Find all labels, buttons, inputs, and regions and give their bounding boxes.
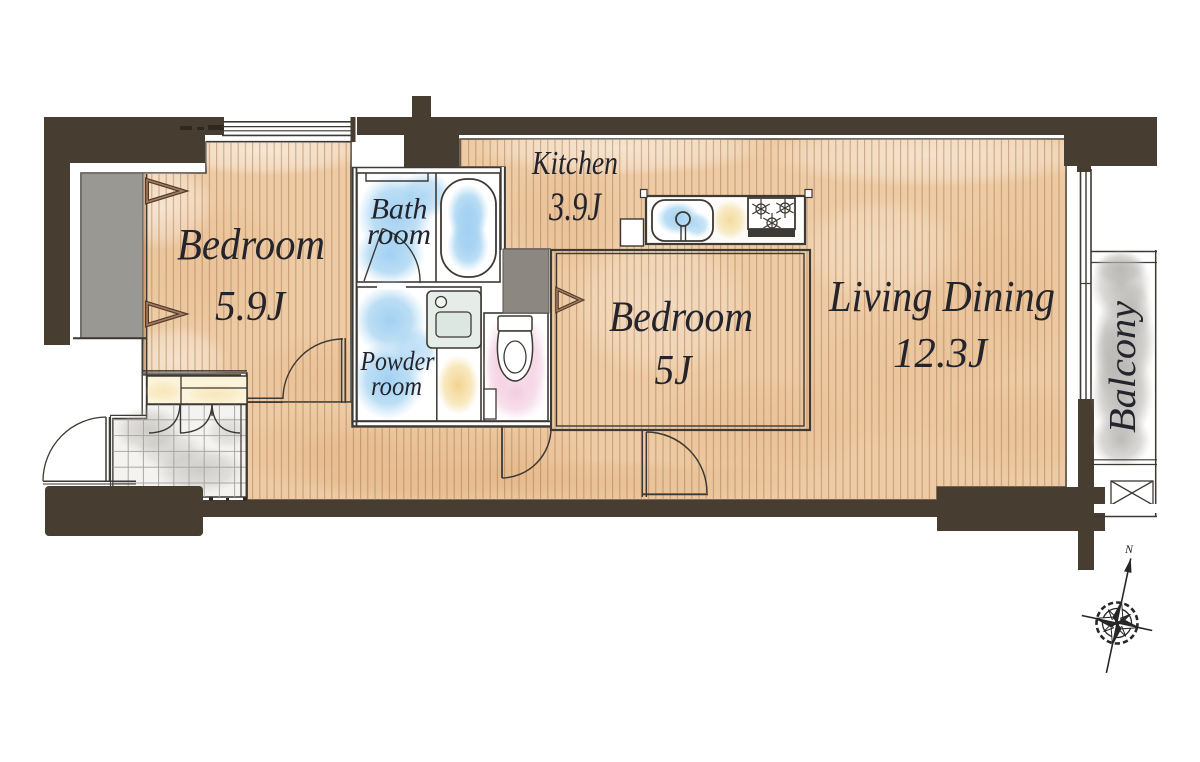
- svg-text:Kitchen: Kitchen: [531, 145, 618, 182]
- svg-text:Balcony: Balcony: [1102, 301, 1144, 433]
- svg-text:5J: 5J: [655, 348, 694, 394]
- svg-text:Bedroom: Bedroom: [177, 220, 325, 269]
- svg-text:5.9J: 5.9J: [215, 284, 287, 330]
- svg-text:room: room: [367, 218, 431, 251]
- svg-text:room: room: [371, 371, 422, 401]
- svg-text:Living Dining: Living Dining: [828, 272, 1055, 321]
- svg-text:3.9J: 3.9J: [548, 184, 602, 229]
- svg-text:12.3J: 12.3J: [893, 331, 989, 377]
- svg-text:N: N: [1124, 542, 1134, 556]
- svg-text:Bedroom: Bedroom: [609, 294, 753, 341]
